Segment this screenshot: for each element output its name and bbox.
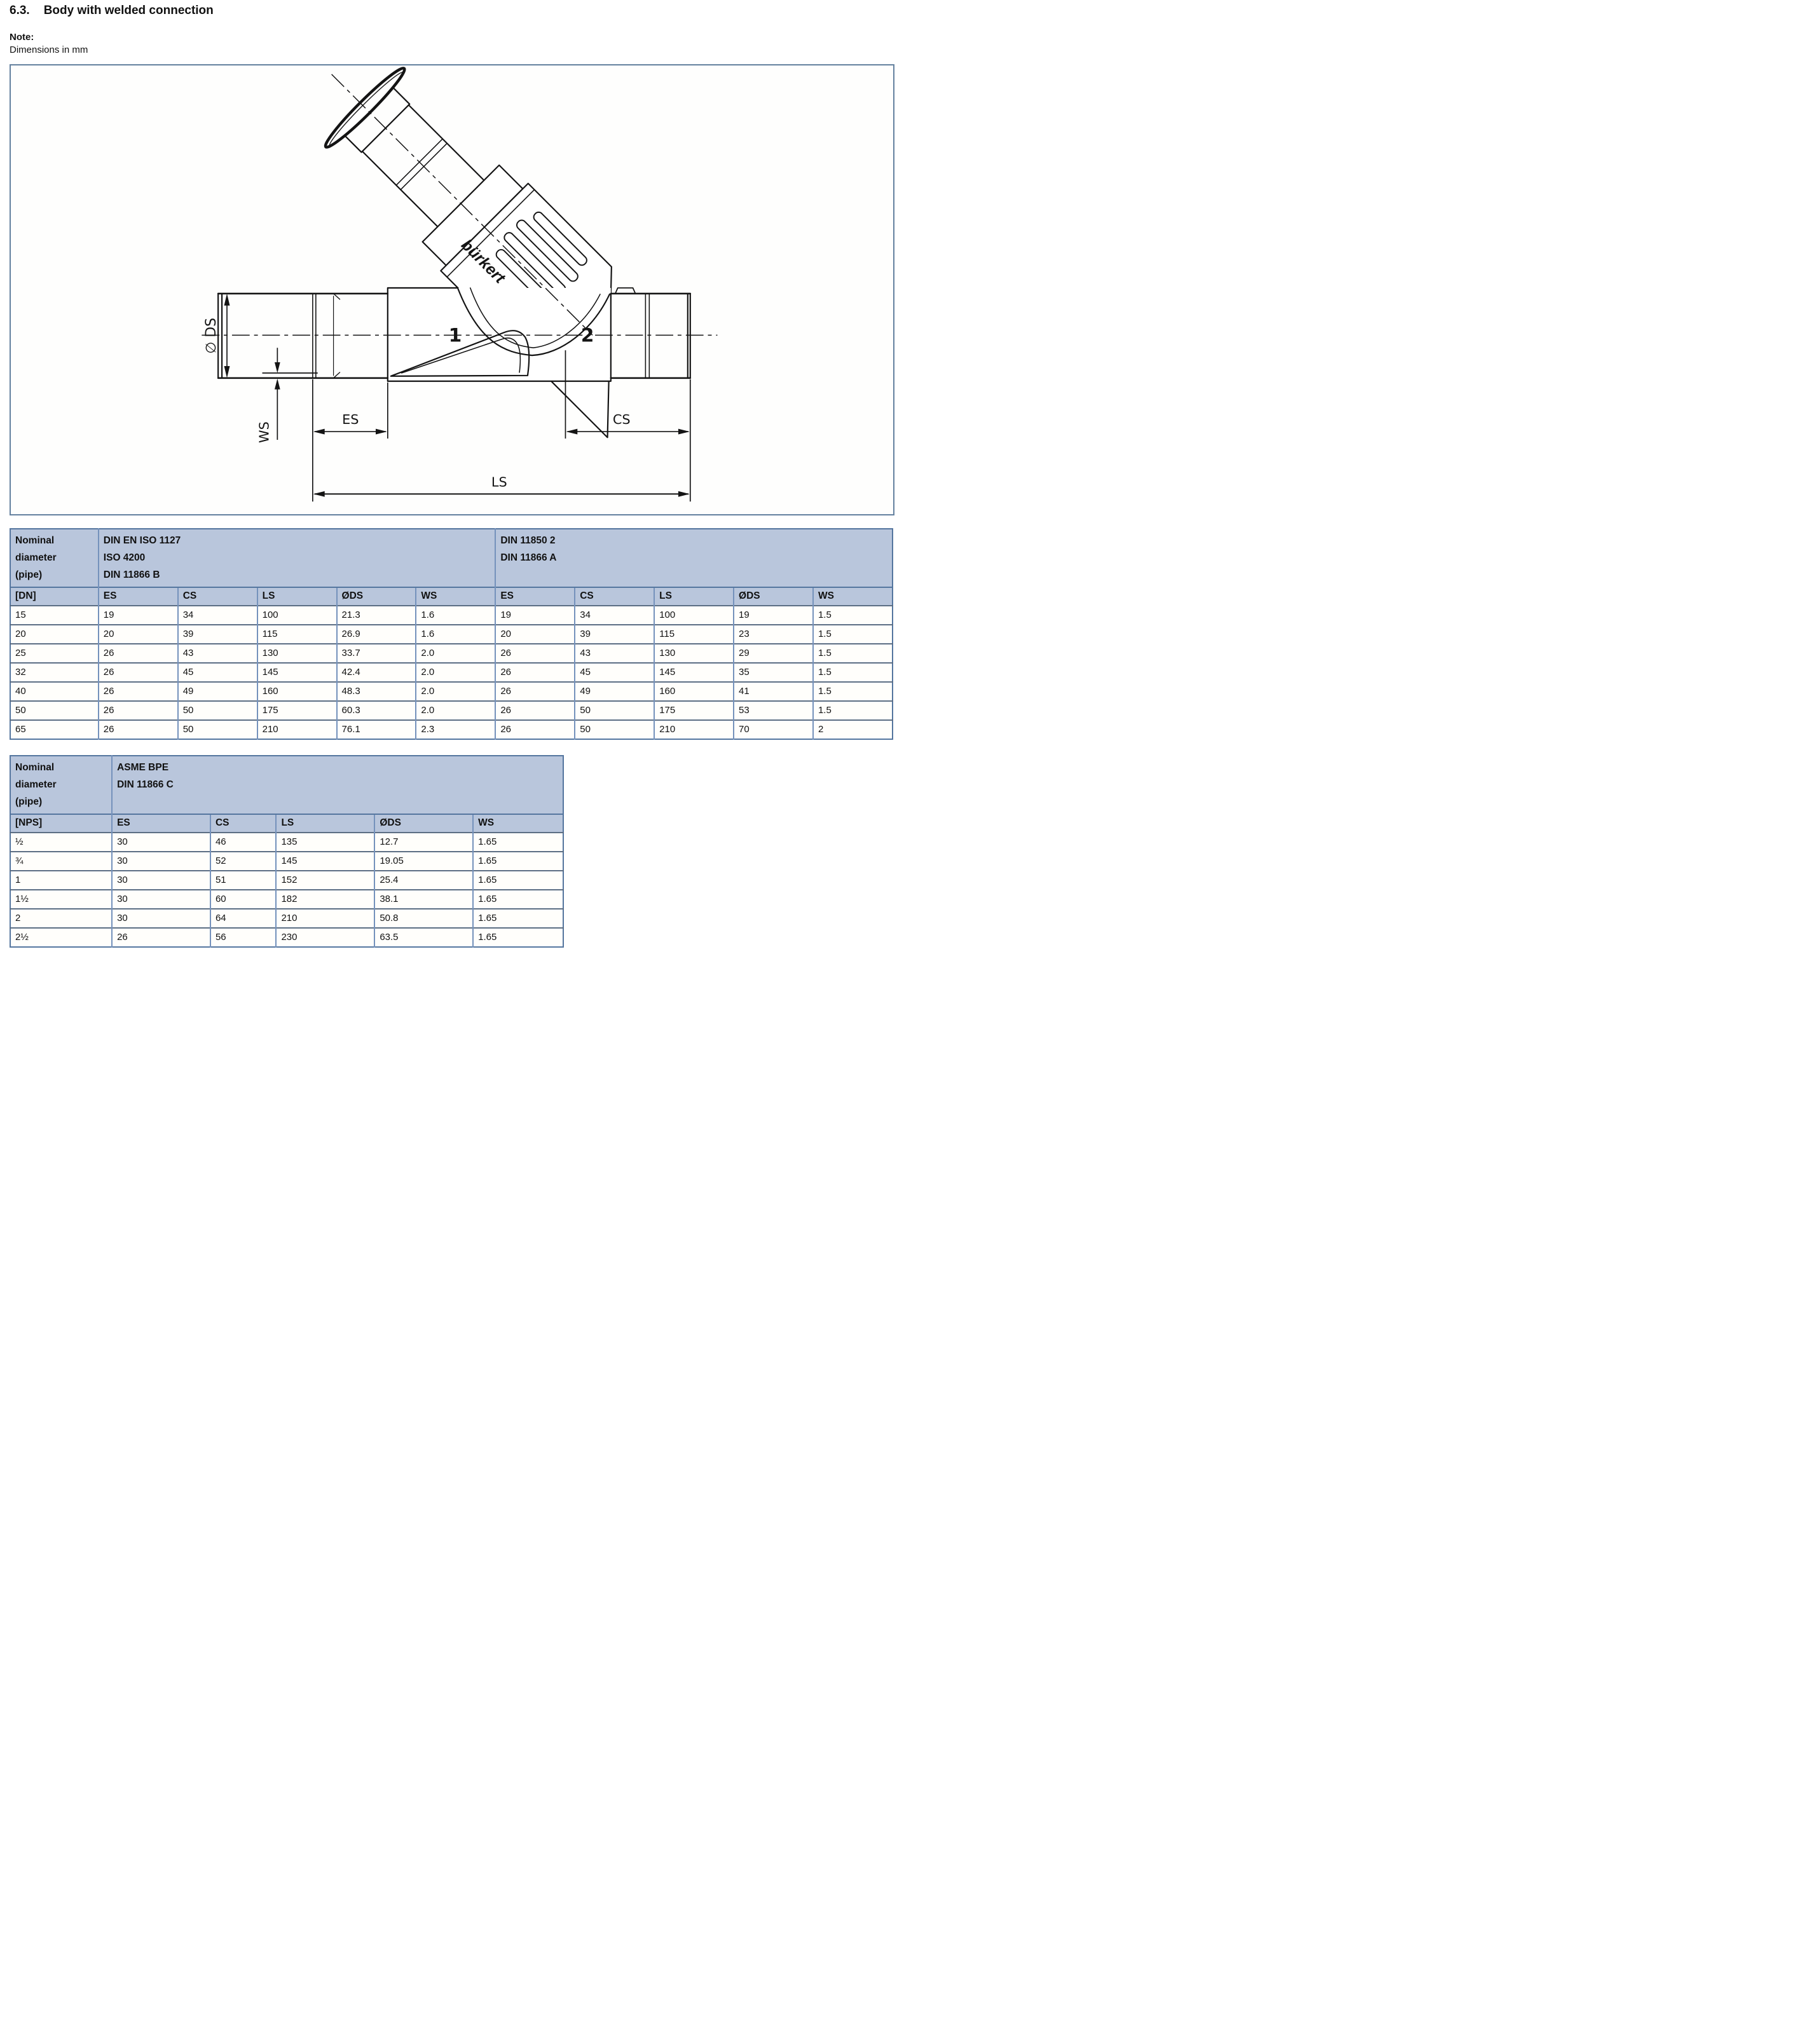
table-row: 2306421050.81.65 — [10, 909, 563, 928]
table-cell: 26 — [99, 663, 178, 682]
column-header: ØDS — [374, 814, 473, 833]
table-row: 20203911526.91.62039115231.5 — [10, 625, 893, 644]
column-header: CS — [575, 587, 654, 606]
dimension-ws: WS — [256, 348, 317, 443]
table-cell: 2.0 — [416, 663, 495, 682]
document-page: 6.3. Body with welded connection Note: D… — [0, 0, 904, 948]
label-ods: ∅ DS — [203, 318, 219, 354]
table-cell: 26.9 — [337, 625, 416, 644]
label-ls: LS — [491, 474, 507, 489]
table-cell: 145 — [257, 663, 337, 682]
table-cell: 34 — [575, 606, 654, 625]
column-header: CS — [210, 814, 277, 833]
table-cell: 25 — [10, 644, 99, 663]
table-cell: 48.3 — [337, 682, 416, 701]
table-cell: 45 — [178, 663, 257, 682]
table-cell: 60.3 — [337, 701, 416, 720]
table-cell: 41 — [734, 682, 813, 701]
column-header: WS — [416, 587, 495, 606]
table-cell: 26 — [495, 644, 575, 663]
column-header: WS — [813, 587, 893, 606]
column-header: ES — [112, 814, 210, 833]
dimension-es: ES — [313, 379, 388, 501]
table-cell: 40 — [10, 682, 99, 701]
table-cell: 49 — [575, 682, 654, 701]
label-ws: WS — [256, 421, 271, 443]
table-cell: 34 — [178, 606, 257, 625]
right-pipe — [611, 288, 690, 378]
table-row: 15193410021.31.61934100191.5 — [10, 606, 893, 625]
table-cell: 1.5 — [813, 644, 893, 663]
table-row: 50265017560.32.02650175531.5 — [10, 701, 893, 720]
table-cell: 1.65 — [473, 909, 563, 928]
table-row: 65265021076.12.32650210702 — [10, 720, 893, 739]
table-cell: 26 — [99, 701, 178, 720]
column-header: ØDS — [337, 587, 416, 606]
table-cell: 30 — [112, 890, 210, 909]
dimension-ods: ∅ DS — [203, 294, 229, 378]
valve-drawing-frame: bürkert — [10, 64, 894, 515]
table-row: 1½306018238.11.65 — [10, 890, 563, 909]
table-cell: 100 — [654, 606, 734, 625]
column-header: LS — [276, 814, 374, 833]
table-cell: 49 — [178, 682, 257, 701]
table-cell: 53 — [734, 701, 813, 720]
corner-header: Nominal diameter (pipe) — [10, 756, 112, 814]
table-cell: 20 — [495, 625, 575, 644]
table-cell: 43 — [178, 644, 257, 663]
table-cell: 26 — [495, 682, 575, 701]
table-cell: 1.65 — [473, 833, 563, 852]
table-cell: 21.3 — [337, 606, 416, 625]
table-cell: 30 — [112, 852, 210, 871]
table-cell: 19 — [734, 606, 813, 625]
table-cell: 63.5 — [374, 928, 473, 947]
table-cell: 35 — [734, 663, 813, 682]
table-cell: 19 — [495, 606, 575, 625]
table-cell: 19 — [99, 606, 178, 625]
table-cell: 76.1 — [337, 720, 416, 739]
table-row: 2½265623063.51.65 — [10, 928, 563, 947]
table-cell: 230 — [276, 928, 374, 947]
table-cell: 2.0 — [416, 701, 495, 720]
table-cell: 1.65 — [473, 871, 563, 890]
section-number: 6.3. — [10, 4, 30, 18]
column-header: CS — [178, 587, 257, 606]
table-cell: 51 — [210, 871, 277, 890]
table-cell: 210 — [276, 909, 374, 928]
table-cell: 50 — [575, 701, 654, 720]
table-cell: 30 — [112, 833, 210, 852]
table-cell: 1.6 — [416, 606, 495, 625]
table-cell: 1.5 — [813, 606, 893, 625]
table-cell: 15 — [10, 606, 99, 625]
note-text: Dimensions in mm — [10, 44, 894, 55]
table-cell: 1.65 — [473, 928, 563, 947]
table-cell: 182 — [276, 890, 374, 909]
table-cell: 65 — [10, 720, 99, 739]
table-cell: 26 — [112, 928, 210, 947]
table-cell: 32 — [10, 663, 99, 682]
table-cell: 175 — [257, 701, 337, 720]
table-cell: 1 — [10, 871, 112, 890]
table-cell: 2 — [813, 720, 893, 739]
table-cell: 29 — [734, 644, 813, 663]
table-cell: 46 — [210, 833, 277, 852]
asme-bpe-dimension-table: Nominal diameter (pipe) ASME BPE DIN 118… — [10, 755, 564, 948]
group-header-din-11850: DIN 11850 2 DIN 11866 A — [495, 529, 893, 587]
column-header-nps: [NPS] — [10, 814, 112, 833]
table-cell: 26 — [495, 720, 575, 739]
table-cell: 145 — [276, 852, 374, 871]
din-iso-dimension-table: Nominal diameter (pipe) DIN EN ISO 1127 … — [10, 528, 893, 740]
column-header-row: [NPS] ES CS LS ØDS WS — [10, 814, 563, 833]
table-cell: 64 — [210, 909, 277, 928]
table-cell: 1.5 — [813, 663, 893, 682]
left-pipe — [218, 294, 388, 378]
label-cs: CS — [613, 412, 631, 427]
table-cell: 175 — [654, 701, 734, 720]
column-header: LS — [654, 587, 734, 606]
table-cell: 1.6 — [416, 625, 495, 644]
table-cell: 52 — [210, 852, 277, 871]
table-cell: 2½ — [10, 928, 112, 947]
table-cell: 50 — [575, 720, 654, 739]
valve-technical-drawing: bürkert — [11, 65, 891, 512]
dimension-ls: LS — [313, 474, 690, 496]
table-cell: 26 — [99, 720, 178, 739]
corner-header: Nominal diameter (pipe) — [10, 529, 99, 587]
table-cell: 45 — [575, 663, 654, 682]
table-cell: 60 — [210, 890, 277, 909]
note-label: Note: — [10, 32, 894, 43]
table-cell: 50 — [178, 701, 257, 720]
table-cell: ¾ — [10, 852, 112, 871]
table-cell: 12.7 — [374, 833, 473, 852]
table-cell: 26 — [99, 644, 178, 663]
table-cell: 1.65 — [473, 890, 563, 909]
table-cell: 130 — [654, 644, 734, 663]
table-cell: 1.5 — [813, 701, 893, 720]
column-header-row: [DN] ES CS LS ØDS WS ES CS LS ØDS WS — [10, 587, 893, 606]
table-cell: 130 — [257, 644, 337, 663]
column-header: ES — [99, 587, 178, 606]
table-cell: 39 — [575, 625, 654, 644]
table-cell: 160 — [257, 682, 337, 701]
section-heading: 6.3. Body with welded connection — [10, 4, 894, 18]
table-cell: 2.0 — [416, 644, 495, 663]
port-2-label: 2 — [581, 324, 594, 346]
table-cell: 1.5 — [813, 682, 893, 701]
table-cell: 152 — [276, 871, 374, 890]
table-cell: 145 — [654, 663, 734, 682]
table-cell: 100 — [257, 606, 337, 625]
table-cell: 26 — [495, 663, 575, 682]
table-cell: 26 — [99, 682, 178, 701]
table-cell: 56 — [210, 928, 277, 947]
table-cell: 70 — [734, 720, 813, 739]
table-cell: 135 — [276, 833, 374, 852]
table-cell: 39 — [178, 625, 257, 644]
table-row: ¾305214519.051.65 — [10, 852, 563, 871]
table-cell: 20 — [10, 625, 99, 644]
group-header-row: Nominal diameter (pipe) DIN EN ISO 1127 … — [10, 529, 893, 587]
table-row: 25264313033.72.02643130291.5 — [10, 644, 893, 663]
table-cell: 210 — [654, 720, 734, 739]
column-header: WS — [473, 814, 563, 833]
group-header-din-en-iso: DIN EN ISO 1127 ISO 4200 DIN 11866 B — [99, 529, 496, 587]
table-cell: 2.3 — [416, 720, 495, 739]
port-1-label: 1 — [449, 324, 462, 346]
table-cell: 160 — [654, 682, 734, 701]
column-header: LS — [257, 587, 337, 606]
table-row: 32264514542.42.02645145351.5 — [10, 663, 893, 682]
column-header-dn: [DN] — [10, 587, 99, 606]
table-cell: 115 — [257, 625, 337, 644]
table-cell: 43 — [575, 644, 654, 663]
table-cell: ½ — [10, 833, 112, 852]
table-cell: 30 — [112, 871, 210, 890]
table-row: ½304613512.71.65 — [10, 833, 563, 852]
table-cell: 19.05 — [374, 852, 473, 871]
table-cell: 26 — [495, 701, 575, 720]
table-cell: 2 — [10, 909, 112, 928]
table-cell: 50.8 — [374, 909, 473, 928]
table-cell: 30 — [112, 909, 210, 928]
table-cell: 210 — [257, 720, 337, 739]
table-cell: 23 — [734, 625, 813, 644]
page-title: Body with welded connection — [44, 4, 214, 18]
label-es: ES — [342, 412, 359, 427]
table-cell: 50 — [10, 701, 99, 720]
table-cell: 50 — [178, 720, 257, 739]
table-row: 1305115225.41.65 — [10, 871, 563, 890]
table-cell: 1½ — [10, 890, 112, 909]
table-cell: 25.4 — [374, 871, 473, 890]
table-cell: 33.7 — [337, 644, 416, 663]
table-cell: 1.65 — [473, 852, 563, 871]
column-header: ØDS — [734, 587, 813, 606]
table-cell: 20 — [99, 625, 178, 644]
table-row: 40264916048.32.02649160411.5 — [10, 682, 893, 701]
table-cell: 1.5 — [813, 625, 893, 644]
group-header-row: Nominal diameter (pipe) ASME BPE DIN 118… — [10, 756, 563, 814]
table-cell: 42.4 — [337, 663, 416, 682]
table-cell: 2.0 — [416, 682, 495, 701]
table-cell: 38.1 — [374, 890, 473, 909]
group-header-asme-bpe: ASME BPE DIN 11866 C — [112, 756, 563, 814]
table-cell: 115 — [654, 625, 734, 644]
column-header: ES — [495, 587, 575, 606]
